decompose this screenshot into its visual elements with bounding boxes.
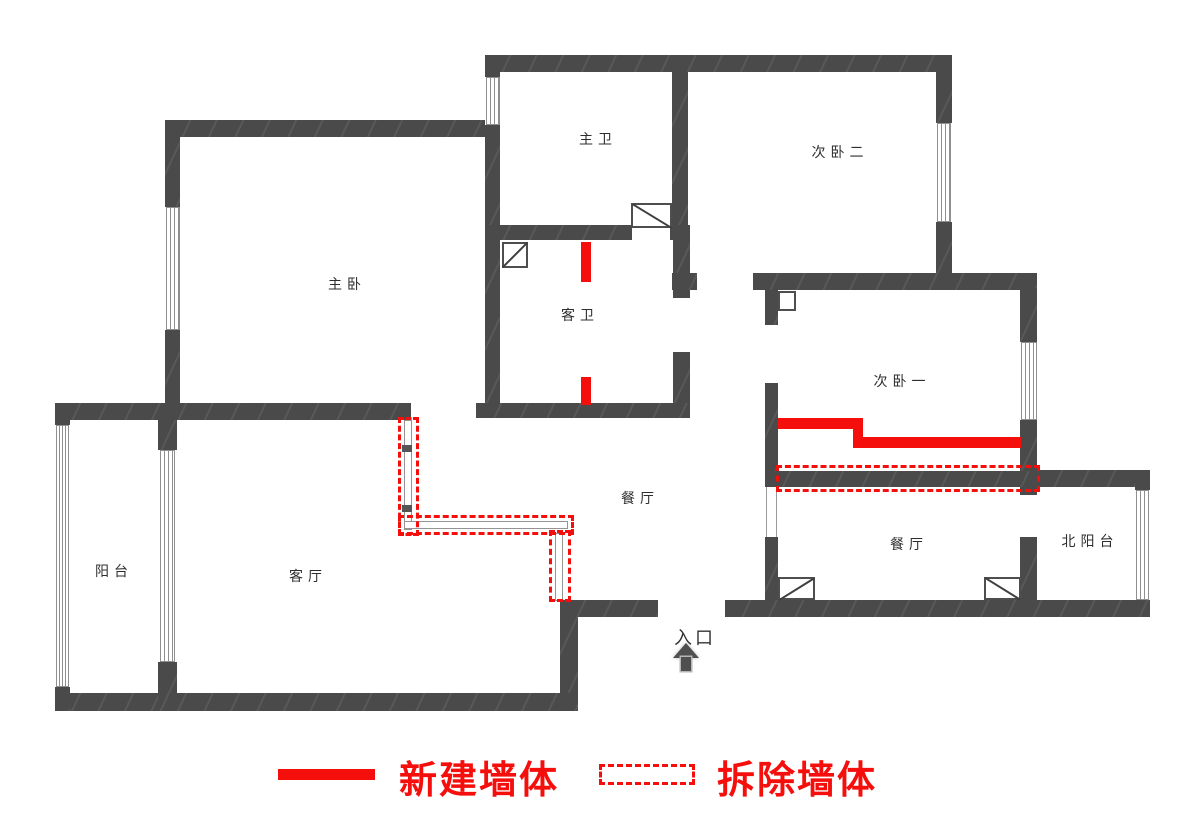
- wall-segment: [55, 693, 578, 711]
- door-swing-icon: [984, 577, 1021, 600]
- window: [166, 207, 180, 330]
- window: [56, 425, 69, 687]
- dining-room-label: 餐厅: [621, 488, 659, 508]
- entrance-arrow-icon: [673, 643, 699, 658]
- wall-segment: [753, 273, 1037, 290]
- door-opening: [766, 487, 777, 537]
- bedroom-1-label: 次卧一: [874, 371, 931, 391]
- new-wall-line: [581, 377, 591, 405]
- master-bath-label: 主卫: [579, 129, 617, 149]
- door-swing-diagonal: [632, 203, 672, 228]
- window: [486, 77, 500, 125]
- new-wall-legend-label: 新建墙体: [399, 749, 559, 804]
- wall-segment: [765, 290, 778, 325]
- door-swing-diagonal: [984, 577, 1020, 601]
- wall-segment: [672, 273, 697, 290]
- demolish-wall-legend-label: 拆除墙体: [717, 749, 877, 804]
- guest-bath-label: 客卫: [561, 305, 599, 325]
- door-swing-diagonal: [778, 577, 814, 601]
- window: [937, 123, 951, 222]
- living-room-label: 客厅: [289, 566, 327, 586]
- north-balcony-label: 北阳台: [1062, 531, 1119, 551]
- wall-segment: [485, 55, 952, 72]
- window: [1136, 490, 1149, 600]
- wall-segment: [55, 403, 411, 420]
- window: [160, 450, 175, 662]
- new-wall-line: [853, 437, 1021, 448]
- balcony-label: 阳台: [95, 561, 133, 581]
- entrance-arrow-stem: [681, 657, 691, 671]
- door-swing-icon: [778, 577, 815, 600]
- wall-segment: [765, 537, 778, 600]
- bedroom-2-label: 次卧二: [812, 142, 869, 162]
- door-swing-icon: [778, 291, 796, 311]
- wall-segment: [1135, 470, 1150, 490]
- new-wall-line: [581, 242, 591, 282]
- window: [1021, 342, 1037, 420]
- wall-segment: [55, 687, 70, 711]
- wall-segment: [672, 72, 688, 227]
- wall-segment: [485, 125, 500, 418]
- new-wall-line: [778, 418, 863, 429]
- wall-segment: [1037, 470, 1150, 487]
- wall-segment: [725, 600, 1150, 617]
- dining-room-2-label: 餐厅: [890, 534, 928, 554]
- demolish-wall-swatch-icon: [599, 764, 695, 785]
- wall-segment: [936, 72, 952, 123]
- wall-segment: [1020, 288, 1037, 342]
- door-swing-icon: [502, 242, 528, 268]
- door-swing-icon: [631, 203, 672, 228]
- wall-segment: [485, 55, 500, 77]
- wall-segment: [485, 225, 632, 240]
- wall-segment: [158, 662, 177, 711]
- demolish-wall-outline: [398, 515, 574, 535]
- wall-segment: [165, 120, 485, 137]
- floor-plan: 主卫 次卧二 主卧 客卫 次卧一 阳台 客厅 餐厅 餐厅 北阳台 入口 新建墙体…: [0, 0, 1200, 835]
- wall-segment: [476, 403, 690, 418]
- demolish-wall-outline: [776, 465, 1040, 492]
- master-bedroom-label: 主卧: [328, 274, 366, 294]
- new-wall-swatch-icon: [278, 769, 375, 780]
- door-swing-diagonal: [502, 242, 528, 268]
- demolish-wall-outline: [549, 530, 571, 602]
